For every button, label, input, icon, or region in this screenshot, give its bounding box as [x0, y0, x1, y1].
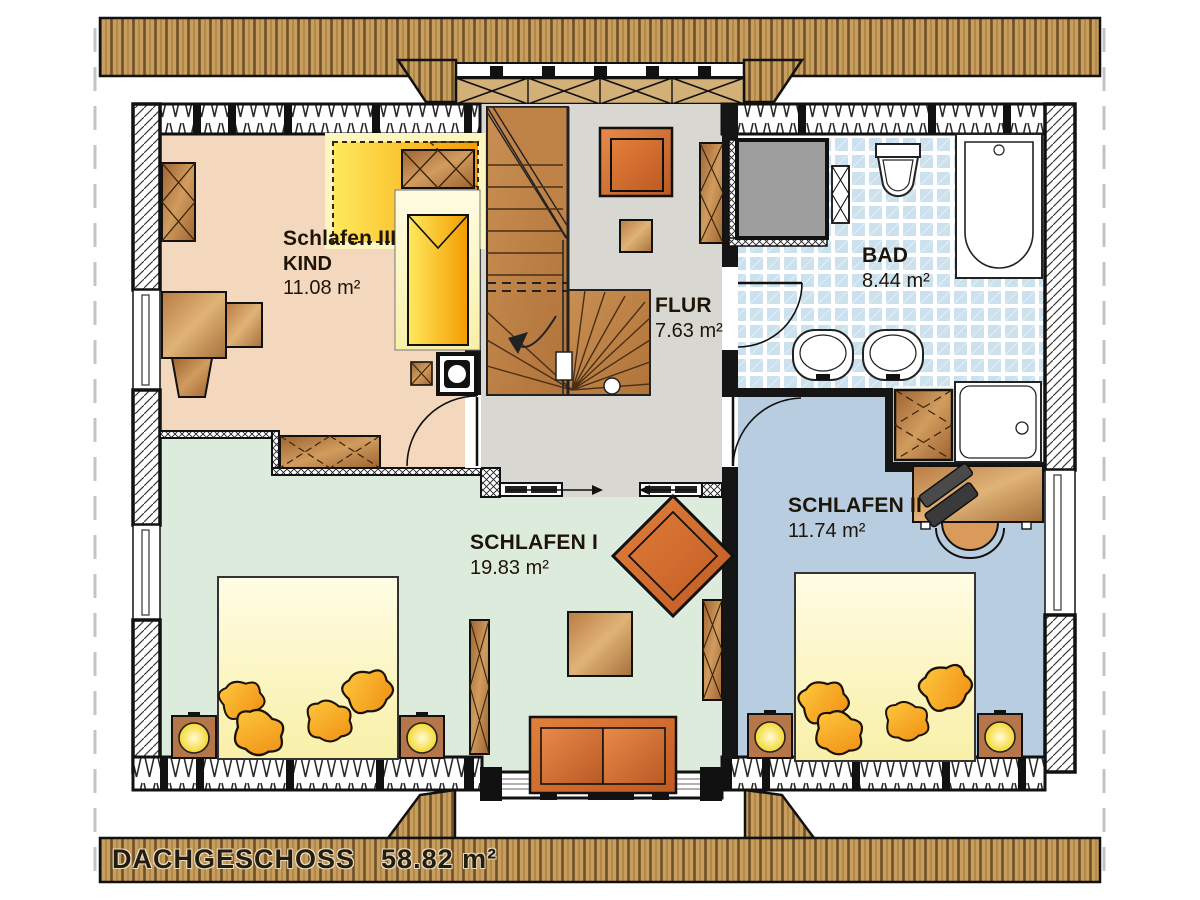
wardrobe-schlafen3 — [162, 163, 195, 241]
stair-post-circle — [604, 378, 620, 394]
radiator-bad — [832, 166, 849, 223]
wall-left — [133, 104, 160, 772]
dormer-bottom-slope-left — [388, 790, 455, 838]
desk-chair — [172, 358, 212, 397]
sink-right — [863, 330, 923, 380]
nightstand-schlafen2-left — [748, 710, 792, 758]
wall-bottom-left-segment — [133, 757, 482, 790]
bed-schlafen2 — [795, 573, 978, 761]
wall-top-right-segment — [722, 104, 1045, 134]
floor-plan-drawing — [0, 0, 1200, 900]
window-left-schlafen1 — [133, 525, 160, 620]
floor-title-label: DACHGESCHOSS — [112, 844, 355, 875]
dormer-roof-slope-right — [744, 60, 802, 102]
window-left-schlafen3 — [133, 290, 160, 390]
shelf-schlafen1-left — [470, 620, 489, 754]
dormer-bottom-slope-right — [745, 790, 814, 838]
bathtub — [956, 134, 1042, 278]
wardrobe-flur — [700, 143, 723, 243]
stool-schlafen3 — [411, 362, 432, 385]
dormer-top-header — [456, 66, 744, 104]
window-right-schlafen2 — [1045, 470, 1075, 615]
shelf-schlafen1-right — [703, 600, 722, 700]
stove-appliance — [438, 354, 476, 394]
lamp — [407, 723, 437, 753]
lamp — [985, 722, 1015, 752]
floor-title-area: 58.82 m² — [381, 844, 497, 875]
stool-flur — [620, 220, 652, 252]
bed-schlafen1 — [217, 577, 398, 762]
sink-left — [793, 330, 853, 380]
bed-schlafen3 — [395, 190, 480, 350]
cabinet-bad — [895, 390, 952, 460]
wall-top-left-segment — [133, 104, 480, 134]
dresser-schlafen3 — [402, 150, 474, 188]
cabinet-schlafen3-bottom — [280, 436, 380, 468]
table-schlafen1 — [568, 612, 632, 676]
floor-title: DACHGESCHOSS 58.82 m² — [112, 844, 497, 875]
shower — [955, 382, 1041, 462]
nightstand-schlafen2-right — [978, 710, 1022, 758]
floor-plan-page: Schlafen III KIND 11.08 m² FLUR 7.63 m² … — [0, 0, 1200, 900]
lamp — [755, 722, 785, 752]
nightstand-schlafen1-right — [400, 712, 444, 758]
sofa-schlafen1 — [530, 717, 676, 793]
wall-schlafen1-schlafen2 — [722, 467, 738, 759]
dormer-roof-slope-left — [398, 60, 456, 102]
lamp — [179, 723, 209, 753]
nightstand-schlafen1-left — [172, 712, 216, 758]
chest-flur — [600, 128, 672, 196]
chimney — [729, 140, 827, 246]
wall-right — [1045, 104, 1075, 772]
